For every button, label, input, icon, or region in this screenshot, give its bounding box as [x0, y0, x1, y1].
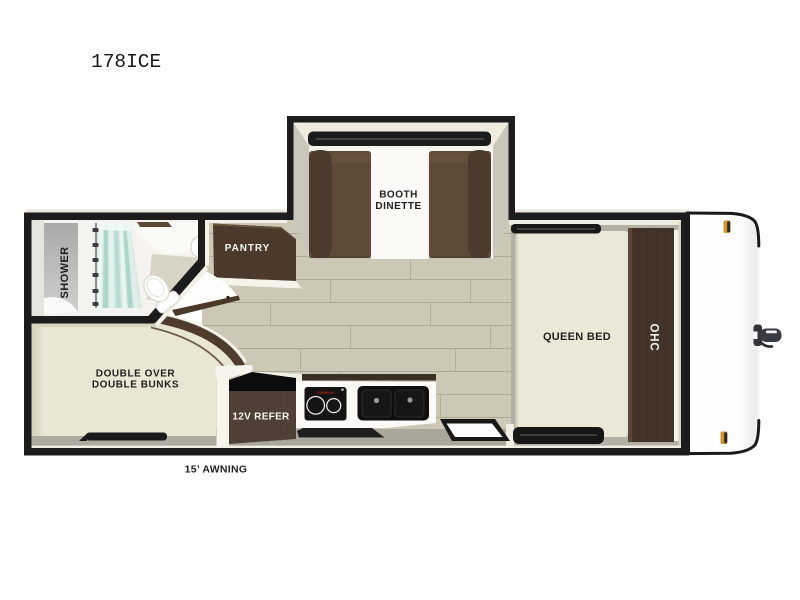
- svg-text:DOUBLE OVER: DOUBLE OVER: [96, 369, 176, 380]
- svg-text:FURRION: FURRION: [317, 391, 334, 395]
- svg-text:15’ AWNING: 15’ AWNING: [185, 464, 248, 476]
- svg-text:PANTRY: PANTRY: [225, 243, 270, 254]
- svg-text:OHC: OHC: [648, 324, 660, 352]
- svg-text:BOOTH: BOOTH: [379, 190, 418, 201]
- svg-text:QUEEN BED: QUEEN BED: [543, 331, 611, 343]
- svg-text:SHOWER: SHOWER: [59, 247, 71, 299]
- svg-text:DINETTE: DINETTE: [375, 201, 421, 212]
- svg-text:178ICE: 178ICE: [91, 51, 161, 73]
- svg-text:DOUBLE BUNKS: DOUBLE BUNKS: [92, 380, 179, 391]
- svg-text:12V REFER: 12V REFER: [232, 412, 290, 423]
